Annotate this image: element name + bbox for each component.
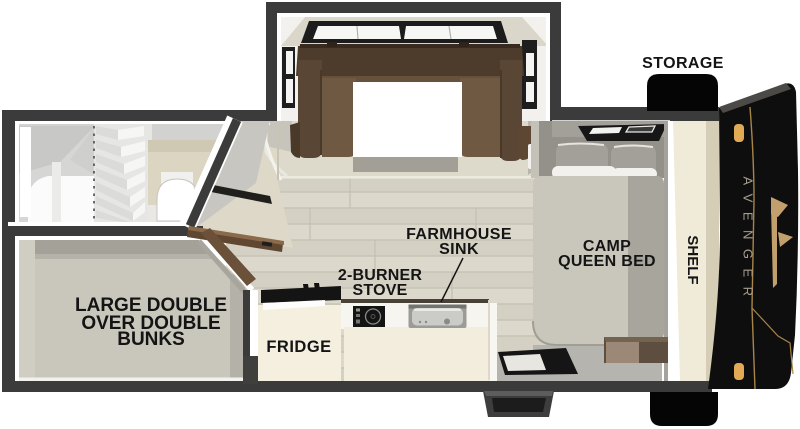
svg-text:FRIDGE: FRIDGE [266, 338, 331, 356]
svg-text:BUNKS: BUNKS [117, 329, 185, 350]
svg-text:SINK: SINK [439, 241, 479, 258]
svg-text:QUEEN BED: QUEEN BED [558, 253, 656, 270]
svg-text:STORAGE: STORAGE [642, 55, 724, 72]
svg-text:SHELF: SHELF [684, 235, 701, 284]
svg-text:AVENGER: AVENGER [741, 176, 756, 305]
svg-text:STOVE: STOVE [353, 282, 408, 299]
